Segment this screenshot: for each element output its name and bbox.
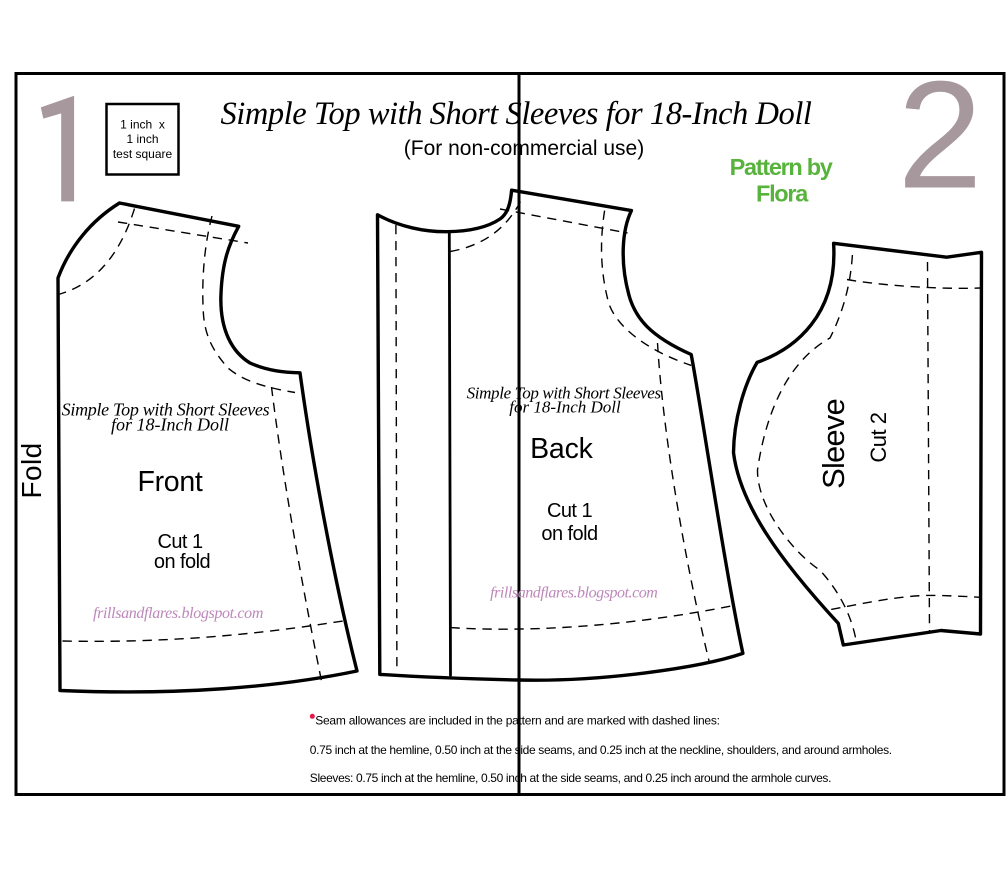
svg-text:Front: Front bbox=[137, 466, 202, 498]
svg-text:for 18-Inch Doll: for 18-Inch Doll bbox=[111, 415, 229, 435]
svg-text:Flora: Flora bbox=[756, 181, 809, 207]
svg-text:Cut 1: Cut 1 bbox=[157, 531, 202, 553]
svg-text:Seam allowances are included i: Seam allowances are included in the patt… bbox=[315, 714, 720, 728]
svg-text:Cut 1: Cut 1 bbox=[547, 500, 592, 522]
svg-text:Fold: Fold bbox=[16, 442, 47, 498]
svg-text:test square: test square bbox=[113, 147, 173, 161]
svg-text:Sleeve: Sleeve bbox=[816, 399, 851, 489]
svg-text:Cut 2: Cut 2 bbox=[866, 412, 891, 462]
svg-text:Sleeves: 0.75 inch at the heml: Sleeves: 0.75 inch at the hemline, 0.50 … bbox=[310, 771, 831, 785]
svg-text:frillsandflares.blogspot.com: frillsandflares.blogspot.com bbox=[93, 605, 263, 622]
svg-text:0.75 inch at the hemline, 0.50: 0.75 inch at the hemline, 0.50 inch at t… bbox=[310, 743, 892, 757]
svg-text:for 18-Inch Doll: for 18-Inch Doll bbox=[509, 398, 621, 417]
svg-text:Pattern by: Pattern by bbox=[730, 154, 833, 180]
svg-text:(For non-commercial use): (For non-commercial use) bbox=[404, 137, 644, 160]
svg-text:Back: Back bbox=[530, 433, 594, 465]
svg-text:Simple Top with Short Sleeves: Simple Top with Short Sleeves for 18-Inc… bbox=[220, 96, 811, 132]
svg-text:on fold: on fold bbox=[154, 551, 210, 573]
svg-text:2: 2 bbox=[897, 50, 982, 221]
svg-text:frillsandflares.blogspot.com: frillsandflares.blogspot.com bbox=[490, 585, 657, 602]
svg-text:1 inch: 1 inch bbox=[126, 132, 158, 146]
svg-text:on fold: on fold bbox=[541, 523, 597, 545]
svg-text:1 inch x: 1 inch x bbox=[120, 118, 165, 132]
